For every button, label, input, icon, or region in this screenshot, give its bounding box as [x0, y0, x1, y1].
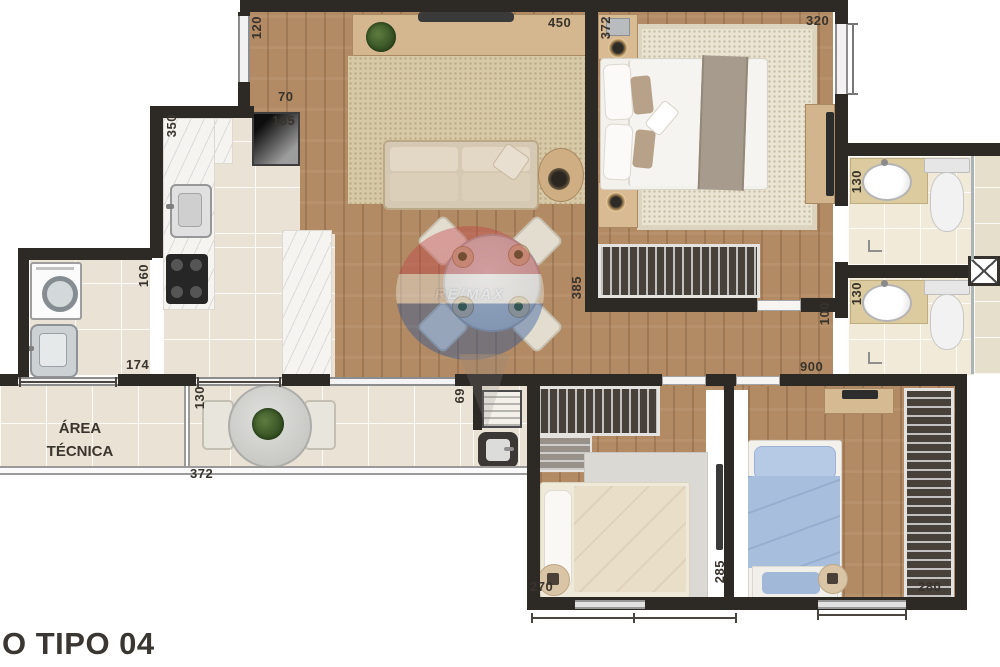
dimension-tick — [115, 377, 117, 387]
dimension-tick — [848, 23, 858, 25]
wall — [835, 143, 1000, 156]
dimension-line — [20, 381, 116, 383]
wall — [118, 374, 196, 386]
door-swing-icon — [868, 352, 882, 364]
lamp-icon — [608, 38, 628, 58]
dim-label: 174 — [126, 358, 149, 371]
wardrobe-bedroom2 — [536, 386, 660, 436]
laundry-sink — [30, 324, 78, 378]
wall — [535, 374, 662, 386]
wall — [240, 0, 846, 12]
floor-plan: ÁREA TÉCNICA — [0, 0, 1000, 667]
laptop-icon — [842, 390, 878, 399]
bed-duvet — [748, 476, 840, 568]
dimension-line — [198, 381, 280, 383]
dimension-tick — [633, 613, 635, 623]
dimension-line — [818, 614, 906, 616]
wardrobe-bedroom1 — [598, 244, 760, 298]
room-label-line: ÁREA — [10, 418, 150, 441]
dimension-tick — [531, 613, 533, 623]
room-label-line: TÉCNICA — [10, 441, 150, 464]
shower-glass — [971, 156, 974, 260]
wall — [780, 374, 967, 386]
wall — [835, 0, 848, 24]
door-opening — [662, 376, 706, 385]
dimension-tick — [817, 610, 819, 620]
plant-icon — [252, 408, 284, 440]
tv-icon — [716, 464, 723, 550]
plan-title: O TIPO 04 — [2, 626, 155, 662]
ventilation-shaft — [968, 256, 1000, 286]
sofa-seat-cushion — [390, 173, 458, 201]
dim-label: 130 — [850, 282, 863, 305]
door-opening — [757, 300, 801, 311]
sofa-back-cushion — [390, 147, 458, 171]
dim-label: 185 — [272, 114, 295, 127]
tv-icon — [418, 12, 514, 22]
door-opening — [736, 376, 780, 385]
dim-label: 320 — [806, 14, 829, 27]
bed-double — [600, 58, 766, 188]
faucet-icon — [881, 280, 888, 287]
room-label-area-tecnica: ÁREA TÉCNICA — [10, 418, 150, 463]
wall — [848, 265, 968, 278]
bed-pillow — [603, 63, 634, 120]
dimension-tick — [905, 610, 907, 620]
wall — [955, 374, 967, 610]
wall — [150, 106, 163, 258]
wardrobe-bedroom3 — [904, 388, 954, 600]
balcony-railing — [0, 466, 527, 475]
dim-label: 70 — [278, 90, 293, 103]
dim-label: 160 — [137, 264, 150, 287]
wall — [18, 248, 29, 382]
window — [818, 600, 906, 609]
dim-label: 350 — [165, 114, 178, 137]
dim-label: 372 — [190, 467, 213, 480]
bed-pillow — [754, 446, 836, 480]
bathroom-sink — [862, 163, 912, 201]
lamp-icon — [606, 192, 626, 212]
faucet-icon — [504, 447, 514, 451]
dim-label: 130 — [850, 170, 863, 193]
stove — [166, 254, 208, 304]
toilet-bowl — [930, 294, 964, 350]
window — [575, 600, 645, 609]
glass-partition — [184, 386, 190, 468]
dim-label: 450 — [548, 16, 571, 29]
washing-machine — [30, 262, 82, 320]
sofa — [383, 140, 539, 210]
wall — [0, 374, 18, 386]
bed-cushion — [630, 75, 654, 115]
dimension-tick — [848, 93, 858, 95]
toilet — [924, 158, 970, 173]
kitchen-island — [282, 230, 332, 382]
bed-cushion — [762, 572, 820, 594]
dim-label: 285 — [713, 560, 726, 583]
toilet — [924, 280, 970, 295]
dim-label: 100 — [818, 302, 831, 325]
wall — [18, 248, 152, 260]
gourmet-sink — [478, 432, 518, 468]
side-table-lamp — [548, 168, 570, 190]
sofa-seat-cushion — [462, 173, 530, 201]
faucet-icon — [166, 204, 174, 209]
dim-label: 270 — [530, 580, 553, 593]
wall — [282, 374, 330, 386]
dim-label: 130 — [193, 386, 206, 409]
bathroom-sink — [862, 284, 912, 322]
toilet-bowl — [930, 172, 964, 232]
balloon-shadow — [454, 354, 514, 428]
wall — [585, 12, 598, 312]
dimension-tick — [19, 377, 21, 387]
kitchen-sink — [170, 184, 212, 238]
plant-icon — [366, 22, 396, 52]
door-swing-icon — [868, 240, 882, 252]
dimension-tick — [735, 613, 737, 623]
dim-label: 900 — [800, 360, 823, 373]
floor-shower-2 — [974, 286, 1000, 374]
wall — [835, 262, 848, 318]
bed-duvet — [574, 486, 686, 592]
dimension-line — [852, 24, 854, 94]
window — [835, 24, 848, 94]
dimension-tick — [279, 377, 281, 387]
bed-cushion — [632, 129, 656, 169]
dim-label: 372 — [599, 16, 612, 39]
watermark-balloon-logo: RE/MAX — [396, 226, 546, 431]
wall — [585, 298, 757, 312]
bed-throw — [698, 55, 749, 191]
tv-icon — [826, 112, 834, 196]
dim-label: 120 — [250, 16, 263, 39]
floor-shower-1 — [974, 156, 1000, 260]
dim-label: 280 — [918, 580, 941, 593]
dim-label: 385 — [570, 276, 583, 299]
faucet-icon — [881, 159, 888, 166]
bed-pillow — [603, 123, 634, 180]
shower-glass — [971, 286, 974, 374]
wall — [706, 374, 736, 386]
watermark-text: RE/MAX — [396, 286, 544, 303]
lamp-icon — [827, 573, 838, 584]
